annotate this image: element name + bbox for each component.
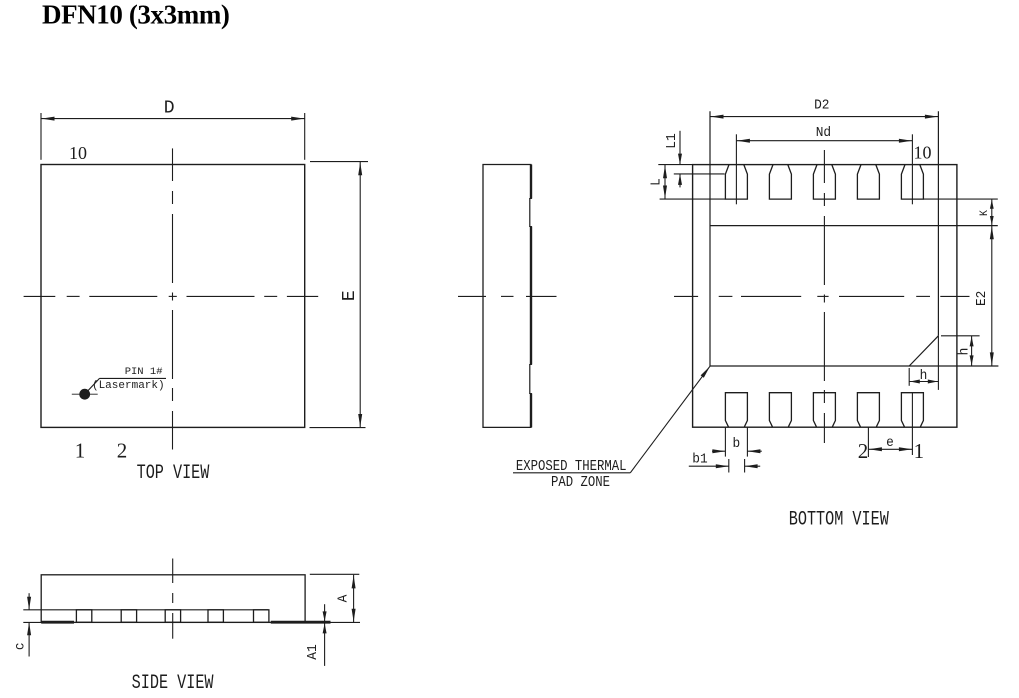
svg-text:b1: b1 [692, 451, 707, 466]
svg-text:10: 10 [914, 143, 932, 163]
svg-text:Nd: Nd [816, 125, 831, 140]
svg-text:DFN10 (3x3mm): DFN10 (3x3mm) [42, 0, 230, 30]
svg-text:e: e [886, 435, 894, 450]
svg-text:1: 1 [75, 439, 86, 463]
svg-text:A: A [335, 595, 350, 603]
svg-text:h: h [920, 368, 928, 383]
svg-text:SIDE VIEW: SIDE VIEW [132, 672, 214, 693]
svg-text:2: 2 [858, 439, 869, 463]
svg-text:h: h [956, 348, 971, 356]
svg-text:K: K [979, 209, 992, 216]
svg-text:L: L [648, 178, 663, 186]
svg-text:TOP VIEW: TOP VIEW [137, 462, 210, 485]
svg-text:A1: A1 [305, 644, 320, 659]
svg-text:EXPOSED THERMAL: EXPOSED THERMAL [516, 459, 627, 475]
svg-text:2: 2 [117, 439, 128, 463]
svg-text:(Lasermark): (Lasermark) [92, 380, 165, 392]
svg-text:E: E [340, 290, 360, 301]
svg-text:c: c [12, 642, 27, 650]
svg-text:D2: D2 [814, 97, 829, 112]
svg-text:L1: L1 [664, 133, 679, 148]
svg-text:b: b [733, 436, 741, 451]
svg-text:D: D [164, 99, 175, 119]
svg-text:E2: E2 [974, 291, 989, 306]
svg-text:PAD ZONE: PAD ZONE [551, 475, 610, 491]
svg-text:10: 10 [69, 143, 87, 163]
svg-text:1: 1 [914, 439, 925, 463]
svg-text:BOTTOM VIEW: BOTTOM VIEW [789, 508, 889, 531]
svg-text:PIN 1#: PIN 1# [125, 366, 163, 378]
